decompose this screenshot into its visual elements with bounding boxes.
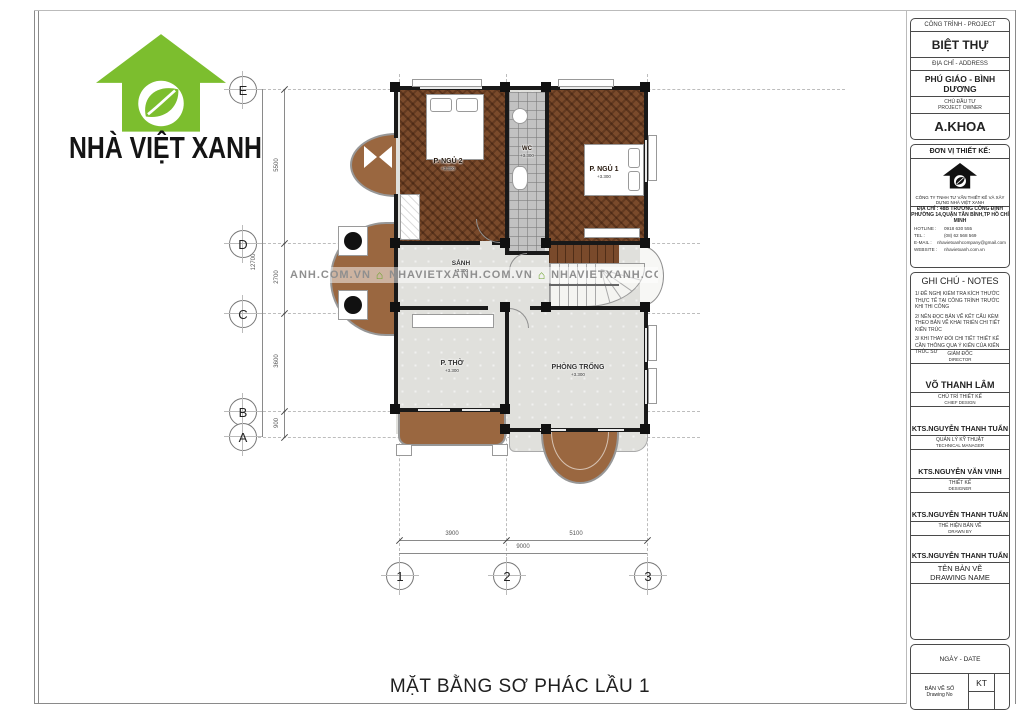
- black-house-icon: [943, 162, 977, 190]
- grid-bubble-B: B: [229, 398, 257, 426]
- planter-plant: [344, 232, 362, 250]
- door-opening: [418, 409, 450, 411]
- role-name-director: VÕ THANH LÂM: [911, 364, 1009, 392]
- grid-bubble-C: C: [229, 300, 257, 328]
- frame-bottom: [34, 703, 906, 704]
- column-marker: [640, 424, 650, 434]
- grid-bubble-1: 1: [386, 562, 414, 590]
- owner-name: A.KHOA: [934, 119, 985, 134]
- contact-value: nhavietxanhcompany@gmail.com: [937, 239, 1006, 246]
- dim-h-total: 9000: [498, 544, 548, 550]
- grid-label: 1: [396, 569, 403, 584]
- column-marker: [390, 404, 400, 414]
- window: [598, 429, 624, 431]
- contact-label: WEBSITE :: [914, 246, 944, 253]
- project-address: PHÚ GIÁO - BÌNH DƯƠNG: [911, 71, 1009, 97]
- dim-line-h-total: [399, 553, 647, 554]
- contact-row: WEBSITE :nhavietxanh.com.vn: [914, 246, 1006, 253]
- owner-label-en: PROJECT OWNER: [938, 105, 982, 111]
- role-name-designer: KTS.NGUYỄN THANH TUẤN: [911, 493, 1009, 521]
- watermark-text: NHAVIETXANH.COM: [551, 269, 658, 281]
- drawing-sheet: NHÀ VIỆT XANH 5500 2700 3600 900 12700 3…: [0, 0, 1024, 724]
- window: [420, 87, 482, 89]
- design-unit-logo: [911, 159, 1009, 193]
- grid-label: D: [238, 237, 247, 252]
- room-name: P. THỜ: [441, 360, 464, 367]
- role-name-technical-manager: KTS.NGUYỄN VĂN VINH: [911, 450, 1009, 478]
- wc-sink: [512, 108, 528, 124]
- role-label-en: DESIGNER: [949, 486, 972, 491]
- wall-segment: [396, 241, 480, 245]
- grid-bubble-2: 2: [493, 562, 521, 590]
- pillow: [628, 148, 640, 168]
- wall-segment: [398, 306, 488, 310]
- column-marker: [640, 82, 650, 92]
- role-name-text: KTS.NGUYỄN THANH TUẤN: [912, 510, 1008, 519]
- column-marker: [500, 82, 510, 92]
- room-name: SẢNH: [452, 260, 470, 267]
- balcony-step: [396, 444, 412, 456]
- contact-value: (08) 62 568 569: [944, 232, 1006, 239]
- drawing-name-label-en: DRAWING NAME: [930, 573, 990, 582]
- window-sill: [648, 135, 657, 181]
- pillow: [456, 98, 478, 112]
- grid-label: A: [239, 430, 248, 445]
- role-name-text: KTS.NGUYỄN THANH TUẤN: [912, 551, 1008, 560]
- project-box: CÔNG TRÌNH - PROJECT BIỆT THỰ ĐỊA CHỈ - …: [910, 18, 1010, 140]
- window-sill: [648, 325, 657, 361]
- room-label-bedroom1: P. NGỦ 1 +3.300: [576, 166, 632, 179]
- company-contacts: HOTLINE :0918 630 555 TEL :(08) 62 568 5…: [911, 223, 1009, 253]
- column-marker: [500, 424, 510, 434]
- role-header-drawn-by: THỂ HIỆN BẢN VẼ DRAWN BY: [911, 521, 1009, 536]
- room-elevation: +3.300: [420, 166, 476, 171]
- window-sill: [412, 79, 482, 87]
- company-name: CÔNG TY TNHH TƯ VẤN THIẾT KẾ VÀ XÂY DỰNG…: [911, 193, 1009, 206]
- column-marker: [500, 404, 510, 414]
- role-label-en: DIRECTOR: [949, 357, 972, 362]
- room-name: WC: [522, 146, 532, 152]
- role-label-en: DRAWN BY: [948, 529, 972, 534]
- frame-top: [34, 10, 1015, 11]
- notes-list: 1/ ĐỀ NGHỊ KIỂM TRA KÍCH THƯỚC THỰC TẾ T…: [911, 289, 1009, 349]
- owner-name-row: A.KHOA: [911, 114, 1009, 139]
- frame-left-outer: [34, 10, 35, 704]
- column-marker: [541, 424, 551, 434]
- watermark-house-icon: ⌂: [538, 270, 546, 280]
- column-marker: [640, 238, 650, 248]
- role-label-en: TECHNICAL MANAGER: [936, 443, 984, 448]
- drawing-no-value: KT: [969, 674, 994, 692]
- wc-toilet: [512, 166, 528, 190]
- note-item: 1/ ĐỀ NGHỊ KIỂM TRA KÍCH THƯỚC THỰC TẾ T…: [915, 291, 1005, 311]
- drawing-no-row: BẢN VẼ SỐ Drawing No KT: [911, 674, 1009, 709]
- room-label-empty-room: PHÒNG TRỐNG +3.300: [546, 364, 610, 377]
- wall-segment: [394, 86, 398, 138]
- room-name: P. NGỦ 1: [589, 166, 618, 173]
- grid-label: 2: [503, 569, 510, 584]
- column-marker: [541, 302, 551, 312]
- contact-label: TEL :: [914, 232, 944, 239]
- room-name: P. NGỦ 2: [433, 158, 462, 165]
- wall-segment: [394, 306, 398, 412]
- window: [645, 328, 647, 362]
- contact-row: HOTLINE :0918 630 555: [914, 225, 1006, 232]
- room-name: PHÒNG TRỐNG: [552, 364, 605, 371]
- column-marker: [390, 238, 400, 248]
- role-header-designer: THIẾT KẾ DESIGNER: [911, 478, 1009, 493]
- contact-row: E-MAIL :nhavietxanhcompany@gmail.com: [914, 239, 1006, 246]
- grid-bubble-E: E: [229, 76, 257, 104]
- grid-bubble-A: A: [229, 423, 257, 451]
- contact-value: 0918 630 555: [944, 225, 1006, 232]
- column-marker: [500, 238, 510, 248]
- grid-label: E: [239, 83, 248, 98]
- grid-bubble-3: 3: [634, 562, 662, 590]
- date-number-box: NGÀY - DATE BẢN VẼ SỐ Drawing No KT: [910, 644, 1010, 710]
- note-item: 2/ NÊN ĐỌC BẢN VẼ KẾT CẤU KÈM THEO BẢN V…: [915, 314, 1005, 334]
- drawing-no-label-en: Drawing No: [926, 692, 952, 698]
- room-label-worship: P. THỜ +3.300: [424, 360, 480, 373]
- room-elevation: +3.300: [508, 153, 546, 158]
- frame-divider-right: [906, 10, 907, 704]
- company-addr2: PHƯỜNG 14,QUẬN TÂN BÌNH,TP HỒ CHÍ MINH: [911, 212, 1009, 224]
- drawing-title: MẶT BẰNG SƠ PHÁC LẦU 1: [280, 676, 760, 698]
- green-house-icon: [96, 34, 226, 134]
- column-marker: [541, 238, 551, 248]
- altar-cabinet: [412, 314, 494, 328]
- column-marker: [640, 302, 650, 312]
- design-unit-box: ĐƠN VỊ THIẾT KẾ: CÔNG TY TNHH TƯ VẤN THI…: [910, 144, 1010, 268]
- room-label-bedroom2: P. NGỦ 2 +3.300: [420, 158, 476, 171]
- role-label-en: CHIEF DESIGN: [944, 400, 975, 405]
- dim-line-v-segments: [284, 89, 285, 437]
- bench: [584, 228, 640, 238]
- wall-segment: [396, 408, 509, 412]
- room-elevation: +3.300: [424, 368, 480, 373]
- drawing-name-label-vi: TÊN BẢN VẼ: [938, 564, 983, 573]
- project-label: CÔNG TRÌNH - PROJECT: [911, 19, 1009, 32]
- role-name-drawn-by: KTS.NGUYỄN THANH TUẤN: [911, 536, 1009, 562]
- notes-title: GHI CHÚ - NOTES: [911, 273, 1009, 289]
- contact-label: HOTLINE :: [914, 225, 944, 232]
- dim-h-0: 3900: [427, 531, 477, 537]
- notes-title-text: GHI CHÚ - NOTES: [921, 276, 998, 286]
- dim-v-0: 5500: [274, 145, 280, 185]
- dim-v-1: 2700: [274, 257, 280, 297]
- column-marker: [541, 82, 551, 92]
- column-marker: [500, 302, 510, 312]
- project-name: BIỆT THỰ: [911, 32, 1009, 58]
- dim-h-1: 5100: [551, 531, 601, 537]
- window-sill: [558, 79, 614, 87]
- room-elevation: +3.300: [546, 372, 610, 377]
- date-row: NGÀY - DATE: [911, 645, 1009, 674]
- room-label-wc: WC +3.300: [508, 146, 546, 158]
- company-name-text: CÔNG TY TNHH TƯ VẤN THIẾT KẾ VÀ XÂY DỰNG…: [913, 195, 1007, 205]
- wardrobe: [400, 194, 420, 240]
- planter-plant: [344, 296, 362, 314]
- role-name-chief-design: KTS.NGUYỄN THANH TUẤN: [911, 407, 1009, 435]
- wall-segment: [549, 241, 648, 245]
- dim-v-3: 900: [274, 403, 280, 443]
- grid-bubble-D: D: [229, 230, 257, 258]
- column-marker: [390, 82, 400, 92]
- dim-line-v-total: [262, 89, 263, 437]
- room-elevation: +3.300: [436, 268, 486, 273]
- frame-right: [1015, 10, 1016, 704]
- window: [645, 370, 647, 404]
- drawing-no-empty: [969, 692, 994, 709]
- drawing-no-value-cell: KT: [968, 674, 994, 709]
- watermark-house-icon: ⌂: [376, 270, 384, 280]
- room-label-hall: SẢNH +3.300: [436, 260, 486, 273]
- pillow: [430, 98, 452, 112]
- design-unit-label-text: ĐƠN VỊ THIẾT KẾ:: [930, 148, 991, 155]
- grid-label: C: [238, 307, 247, 322]
- contact-value: nhavietxanh.com.vn: [944, 246, 1006, 253]
- window: [560, 87, 612, 89]
- room-elevation: +3.300: [576, 174, 632, 179]
- brand-name: NHÀ VIỆT XANH: [69, 130, 253, 166]
- balcony-step: [492, 444, 508, 456]
- wall-segment: [509, 428, 648, 432]
- window-sill: [648, 368, 657, 404]
- drawing-no-label: BẢN VẼ SỐ Drawing No: [911, 674, 968, 709]
- column-marker: [390, 302, 400, 312]
- title-block: CÔNG TRÌNH - PROJECT BIỆT THỰ ĐỊA CHỈ - …: [910, 18, 1010, 710]
- frame-left-inner: [38, 10, 39, 704]
- address-label: ĐỊA CHỈ - ADDRESS: [911, 58, 1009, 71]
- role-name-text: KTS.NGUYỄN VĂN VINH: [918, 467, 1001, 476]
- grid-label: 3: [644, 569, 651, 584]
- bottom-left-balcony: [398, 410, 506, 446]
- stair-railing: [549, 284, 619, 286]
- notes-roles-box: GHI CHÚ - NOTES 1/ ĐỀ NGHỊ KIỂM TRA KÍCH…: [910, 272, 1010, 640]
- dim-line-h-segments: [399, 540, 647, 541]
- contact-label: E-MAIL :: [914, 239, 937, 246]
- drawing-name-header: TÊN BẢN VẼ DRAWING NAME: [911, 562, 1009, 584]
- window: [645, 140, 647, 182]
- owner-label: CHỦ ĐẦU TƯ PROJECT OWNER: [911, 97, 1009, 114]
- date-label: NGÀY - DATE: [940, 656, 981, 663]
- company-address: ĐỊA CHỈ : 48B TRƯƠNG CÔNG ĐỊNH PHƯỜNG 14…: [911, 206, 1009, 223]
- role-name-text: VÕ THANH LÂM: [926, 380, 995, 390]
- wall-segment: [505, 251, 549, 255]
- design-unit-label: ĐƠN VỊ THIẾT KẾ:: [911, 145, 1009, 159]
- role-header-chief-design: CHỦ TRÌ THIẾT KẾ CHIEF DESIGN: [911, 392, 1009, 407]
- drawing-no-side-cell: [994, 674, 1009, 709]
- company-logo: [96, 34, 226, 134]
- role-header-technical-manager: QUẢN LÝ KỸ THUẬT TECHNICAL MANAGER: [911, 435, 1009, 450]
- drawing-name-space: [911, 584, 1009, 634]
- door-opening: [462, 409, 490, 411]
- dim-v-2: 3600: [274, 341, 280, 381]
- contact-row: TEL :(08) 62 568 569: [914, 232, 1006, 239]
- stair-upper-flight: [549, 245, 619, 263]
- watermark-text: ANH.COM.VN: [290, 269, 371, 281]
- wall-segment: [545, 88, 549, 245]
- role-name-text: KTS.NGUYỄN THANH TUẤN: [912, 424, 1008, 433]
- wall-segment: [505, 88, 509, 255]
